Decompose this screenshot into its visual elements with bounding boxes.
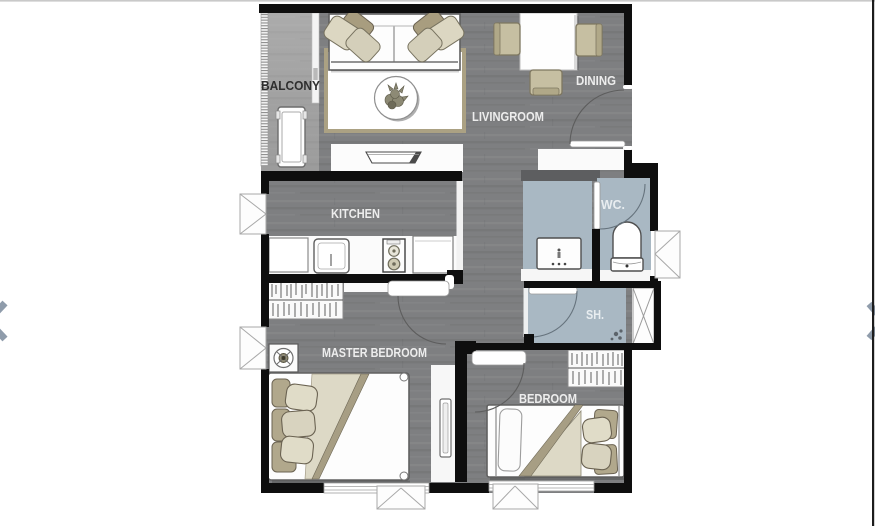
svg-text:WC.: WC. bbox=[601, 198, 625, 212]
svg-text:SH.: SH. bbox=[586, 308, 604, 322]
svg-text:BEDROOM: BEDROOM bbox=[519, 392, 577, 406]
svg-text:LIVINGROOM: LIVINGROOM bbox=[472, 110, 544, 124]
svg-text:DINING: DINING bbox=[576, 74, 616, 88]
svg-text:KITCHEN: KITCHEN bbox=[331, 207, 380, 221]
svg-text:MASTER BEDROOM: MASTER BEDROOM bbox=[322, 346, 427, 360]
svg-text:BALCONY: BALCONY bbox=[261, 79, 321, 93]
